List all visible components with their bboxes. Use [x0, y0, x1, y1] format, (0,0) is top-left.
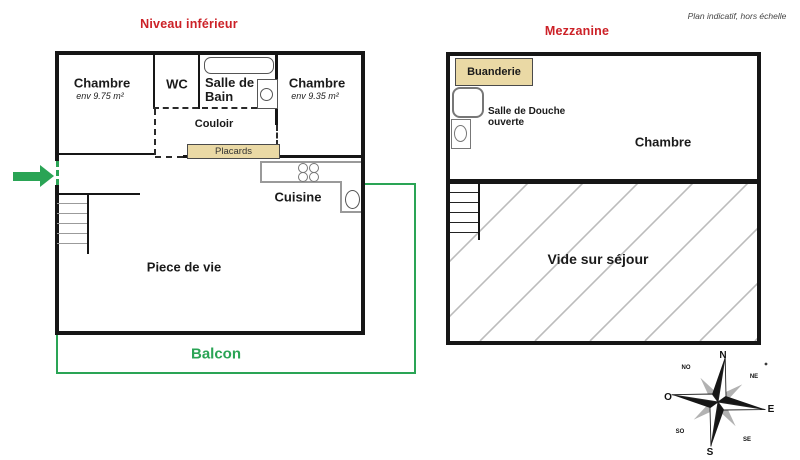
compass-south-label: S [707, 447, 714, 458]
bedroom2-label: Chambre [289, 76, 345, 91]
entrance-arrow [13, 172, 40, 181]
hob-burner [309, 172, 319, 182]
compass-southwest-label: SO [676, 429, 685, 435]
living-room-label: Piece de vie [147, 260, 221, 275]
stair-tread [450, 232, 478, 233]
stair-tread [57, 203, 87, 204]
compass-southeast-label: SE [743, 437, 751, 443]
bathtub [204, 57, 274, 74]
wall-segment [446, 341, 761, 345]
wall-segment [55, 331, 365, 335]
entrance-arrow-head [40, 165, 54, 187]
mezzanine-bedroom-label: Chambre [635, 135, 691, 150]
hob-burner [298, 172, 308, 182]
balcony-label: Balcon [191, 346, 241, 363]
dashed-wall [153, 107, 257, 109]
compass-speck [765, 363, 768, 366]
stair-tread [57, 233, 87, 234]
open-shower-label: Salle de Douche ouverte [488, 107, 576, 129]
floorplan-canvas: Niveau inférieur Mezzanine Plan indicati… [0, 0, 800, 460]
compass-northwest-label: NO [682, 365, 691, 371]
hallway-label: Couloir [195, 118, 234, 130]
bedroom1-area: env 9.75 m² [76, 91, 124, 101]
closets-label: Placards [215, 146, 252, 157]
wall-segment [55, 51, 365, 55]
mezzanine-title: Mezzanine [545, 24, 609, 38]
kitchen-label: Cuisine [275, 190, 322, 205]
compass-west-label: O [664, 392, 672, 403]
laundry-box: Buanderie [455, 58, 533, 86]
laundry-label: Buanderie [467, 66, 521, 78]
wall-segment [446, 179, 761, 184]
compass-east-label: E [768, 404, 775, 415]
wall-segment [55, 153, 155, 155]
entrance-door-dashes [56, 161, 59, 185]
dashed-wall [155, 156, 183, 158]
dashed-wall [154, 109, 156, 155]
stair-tread [450, 212, 478, 213]
compass-rose: N S E O NO NE SO SE [660, 347, 778, 459]
dashed-wall [276, 125, 278, 146]
stair-tread [57, 223, 87, 224]
bedroom2-area: env 9.35 m² [291, 91, 339, 101]
closets-box: Placards [187, 144, 280, 159]
wall-segment [55, 51, 59, 161]
void-label: Vide sur séjour [548, 251, 649, 267]
wc-label: WC [166, 77, 188, 92]
stair-tread [450, 222, 478, 223]
wall-segment [361, 51, 365, 335]
washbasin-bowl [454, 125, 467, 142]
bedroom1-label: Chambre [74, 76, 130, 91]
stairs-stringer [478, 183, 480, 240]
wall-segment [198, 55, 200, 109]
lower-level-title: Niveau inférieur [140, 17, 238, 31]
stair-tread [450, 192, 478, 193]
wall-segment [757, 52, 761, 345]
bathroom-label: Salle de Bain [205, 76, 267, 104]
wall-segment [446, 52, 450, 345]
disclaimer-note: Plan indicatif, hors échelle [688, 11, 787, 21]
wall-segment [446, 52, 761, 56]
kitchen-counter [260, 161, 262, 183]
compass-north-label: N [719, 350, 726, 361]
stairs-stringer [87, 193, 89, 254]
kitchen-counter [340, 181, 342, 213]
stair-tread [57, 213, 87, 214]
compass-northeast-label: NE [750, 374, 758, 380]
stairs-edge [57, 193, 140, 195]
wall-segment [153, 55, 155, 109]
stair-tread [57, 243, 87, 244]
stair-tread [450, 202, 478, 203]
wall-segment [55, 185, 59, 335]
shower-tray [452, 87, 484, 118]
kitchen-counter [340, 211, 361, 213]
kitchen-sink [345, 190, 360, 209]
